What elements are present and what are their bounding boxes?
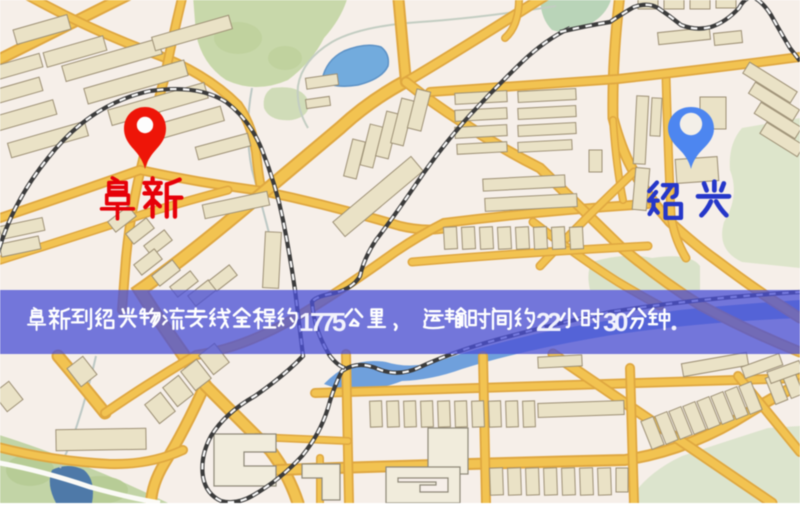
svg-text:22: 22	[536, 307, 561, 337]
svg-text:1775: 1775	[299, 307, 346, 337]
svg-text:30: 30	[603, 307, 628, 337]
